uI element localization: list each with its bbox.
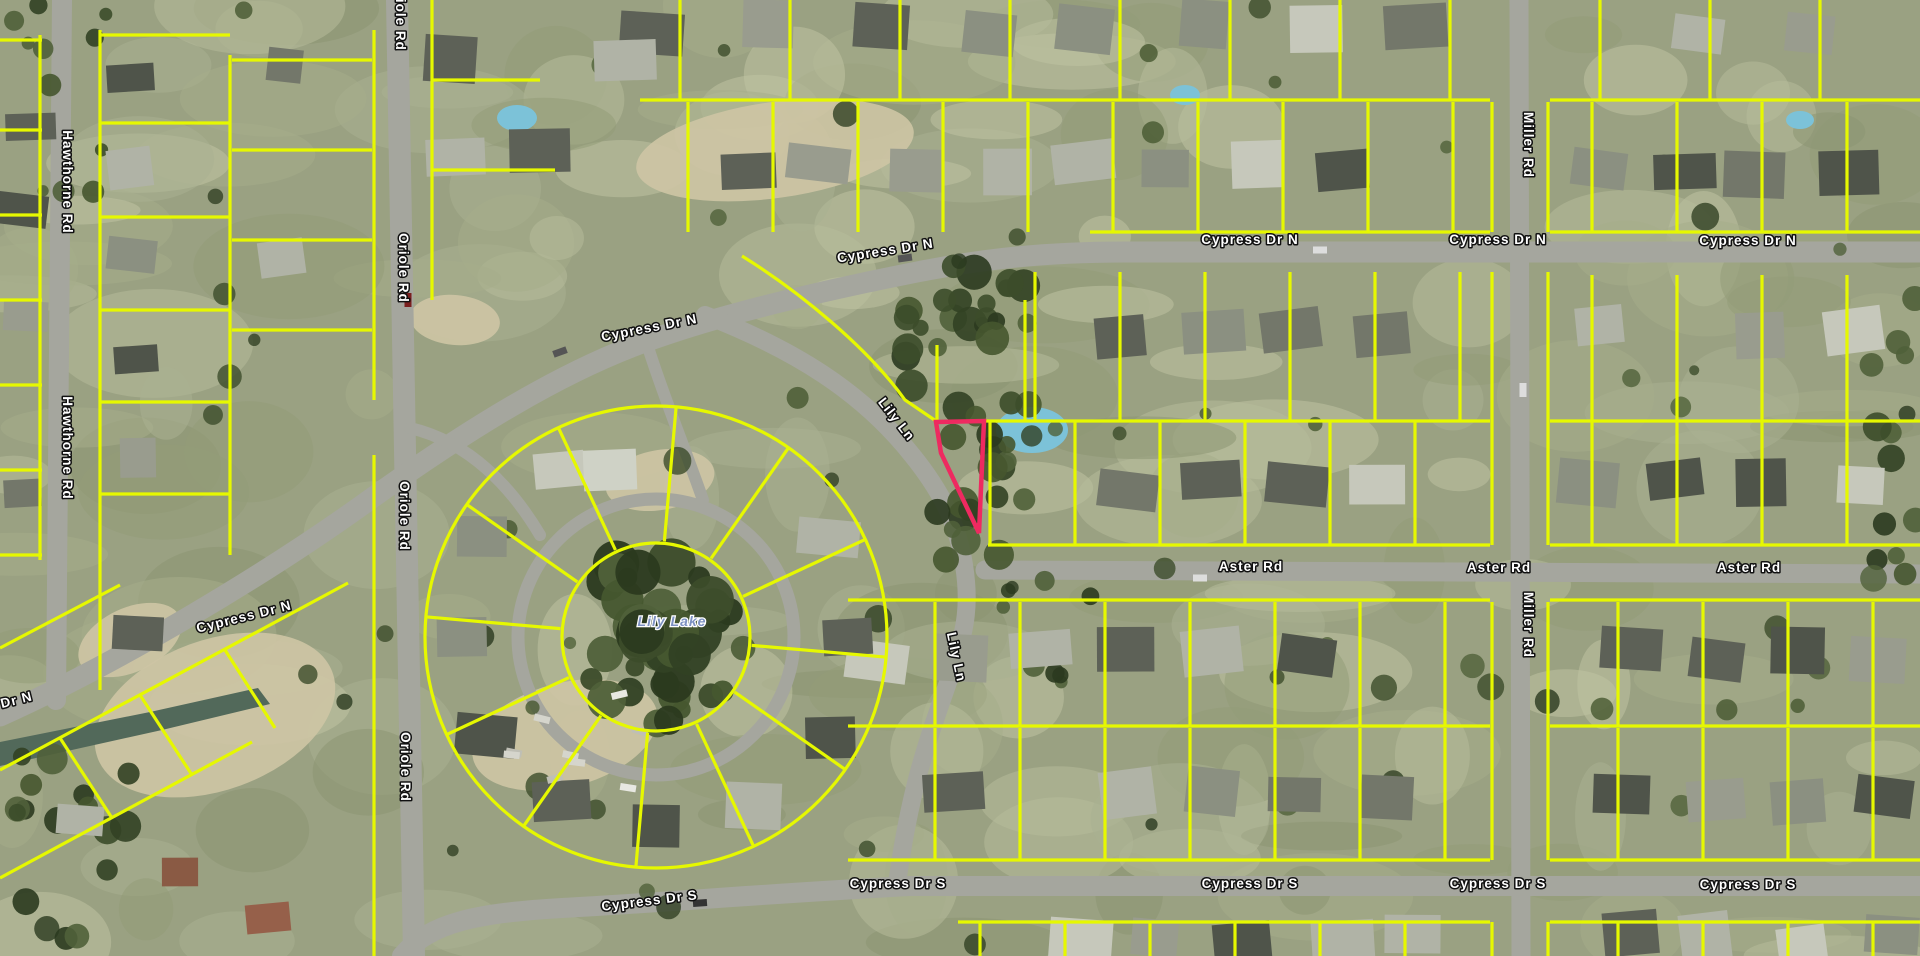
building bbox=[3, 301, 49, 332]
building bbox=[1836, 465, 1884, 505]
tree-canopy bbox=[9, 804, 26, 821]
tree-canopy bbox=[118, 763, 140, 785]
building bbox=[1735, 312, 1785, 360]
tree-canopy bbox=[712, 680, 734, 702]
tree-canopy bbox=[1670, 397, 1691, 418]
building bbox=[1849, 636, 1907, 684]
terrain-patch bbox=[1428, 458, 1491, 492]
building bbox=[1599, 626, 1663, 672]
tree-canopy bbox=[1269, 76, 1282, 89]
swimming-pool bbox=[497, 105, 537, 131]
building bbox=[257, 237, 307, 278]
tree-canopy bbox=[99, 8, 112, 21]
building bbox=[1096, 468, 1160, 512]
building bbox=[1784, 12, 1836, 55]
tree-canopy bbox=[710, 209, 727, 226]
road-surface bbox=[1519, 0, 1521, 956]
building bbox=[1854, 774, 1915, 819]
street-label: Miller Rd bbox=[1521, 592, 1536, 658]
street-label: Cypress Dr N bbox=[1449, 232, 1547, 247]
building bbox=[1179, 0, 1230, 49]
building bbox=[889, 149, 943, 193]
vehicle bbox=[1520, 383, 1527, 397]
tree-canopy bbox=[1021, 425, 1042, 446]
building bbox=[1822, 305, 1886, 357]
tree-canopy bbox=[4, 11, 24, 31]
tree-canopy bbox=[1860, 353, 1884, 377]
tree-canopy bbox=[975, 321, 1009, 355]
tree-canopy bbox=[1689, 365, 1699, 375]
tree-canopy bbox=[564, 637, 576, 649]
building bbox=[56, 804, 105, 837]
tree-canopy bbox=[65, 924, 90, 949]
street-label: Miller Rd bbox=[1521, 112, 1536, 178]
building bbox=[0, 191, 49, 229]
building bbox=[106, 63, 155, 93]
building bbox=[796, 517, 861, 559]
building bbox=[1677, 910, 1732, 956]
building bbox=[983, 149, 1032, 196]
vehicle bbox=[1313, 247, 1327, 254]
tree-canopy bbox=[718, 44, 731, 57]
building bbox=[1184, 765, 1240, 817]
tree-canopy bbox=[1082, 587, 1100, 605]
map-viewport[interactable]: Hawthorne RdHawthorne RdOriole RdOriole … bbox=[0, 0, 1920, 956]
terrain-patch bbox=[530, 216, 584, 260]
building bbox=[822, 618, 873, 657]
building bbox=[1723, 150, 1786, 199]
tree-canopy bbox=[940, 424, 966, 450]
tree-canopy bbox=[1791, 699, 1805, 713]
building bbox=[112, 615, 164, 652]
tree-canopy bbox=[663, 447, 691, 475]
tree-canopy bbox=[650, 670, 679, 699]
building bbox=[1601, 909, 1659, 956]
tree-canopy bbox=[924, 499, 950, 525]
tree-canopy bbox=[1591, 698, 1614, 721]
building bbox=[1008, 629, 1072, 669]
building bbox=[593, 39, 656, 81]
tree-canopy bbox=[213, 283, 235, 305]
tree-canopy bbox=[96, 859, 117, 880]
building bbox=[1050, 138, 1116, 185]
building bbox=[266, 47, 304, 84]
swimming-pool bbox=[1786, 111, 1814, 129]
building bbox=[1353, 311, 1411, 358]
tree-canopy bbox=[1888, 547, 1905, 564]
tree-canopy bbox=[731, 636, 756, 661]
tree-canopy bbox=[447, 845, 459, 857]
tree-canopy bbox=[859, 841, 876, 858]
lake-label: Lily Lake bbox=[638, 613, 707, 629]
building bbox=[1231, 140, 1284, 189]
road-surface bbox=[56, 0, 62, 700]
building bbox=[785, 142, 852, 184]
tree-canopy bbox=[377, 625, 394, 642]
tree-canopy bbox=[1113, 426, 1127, 440]
building bbox=[1277, 633, 1337, 678]
building bbox=[5, 113, 56, 141]
terrain-patch bbox=[78, 444, 249, 539]
street-label: Aster Rd bbox=[1717, 560, 1781, 575]
street-label: Oriole Rd bbox=[393, 0, 408, 51]
terrain-patch bbox=[930, 100, 1062, 140]
terrain-patch bbox=[119, 878, 173, 940]
tree-canopy bbox=[1013, 488, 1035, 510]
building bbox=[805, 716, 856, 759]
tree-canopy bbox=[1145, 818, 1157, 830]
terrain-patch bbox=[1413, 258, 1526, 347]
tree-canopy bbox=[1896, 346, 1914, 364]
building bbox=[1141, 150, 1188, 188]
building bbox=[509, 128, 571, 173]
building bbox=[113, 344, 159, 374]
street-label: Oriole Rd bbox=[396, 233, 411, 303]
tree-canopy bbox=[248, 334, 260, 346]
street-label: Aster Rd bbox=[1219, 559, 1283, 574]
tree-canopy bbox=[933, 289, 956, 312]
building bbox=[1646, 457, 1705, 500]
street-label: Oriole Rd bbox=[398, 732, 413, 802]
tree-canopy bbox=[1622, 369, 1640, 387]
street-label: Oriole Rd bbox=[397, 481, 412, 551]
building bbox=[1290, 5, 1343, 53]
vehicle bbox=[1193, 575, 1207, 582]
street-label: Hawthorne Rd bbox=[60, 396, 75, 500]
building bbox=[922, 771, 985, 813]
building bbox=[742, 0, 794, 48]
building bbox=[1180, 460, 1242, 500]
tree-canopy bbox=[1716, 699, 1737, 720]
tree-canopy bbox=[1371, 675, 1397, 701]
tree-canopy bbox=[1860, 565, 1887, 592]
building bbox=[1686, 778, 1746, 823]
tree-canopy bbox=[615, 550, 660, 595]
street-label: Cypress Dr N bbox=[1201, 232, 1299, 247]
street-label: Aster Rd bbox=[1467, 560, 1531, 575]
tree-canopy bbox=[1005, 581, 1018, 594]
tree-canopy bbox=[203, 405, 223, 425]
street-label: Cypress Dr S bbox=[1202, 876, 1299, 891]
building bbox=[1671, 13, 1726, 54]
building bbox=[3, 478, 42, 508]
building bbox=[1383, 2, 1449, 50]
tree-canopy bbox=[964, 934, 986, 956]
building bbox=[1054, 3, 1115, 55]
tree-canopy bbox=[1154, 558, 1176, 580]
tree-canopy bbox=[951, 253, 967, 269]
building bbox=[245, 902, 292, 935]
terrain-patch bbox=[1038, 286, 1174, 323]
terrain-patch bbox=[196, 788, 310, 872]
building bbox=[1818, 150, 1879, 196]
building bbox=[1181, 309, 1246, 355]
tree-canopy bbox=[1863, 412, 1892, 441]
tree-canopy bbox=[833, 101, 859, 127]
swimming-pool bbox=[1170, 85, 1200, 105]
tree-canopy bbox=[1440, 141, 1453, 154]
tree-canopy bbox=[1269, 669, 1284, 684]
tree-canopy bbox=[996, 269, 1024, 297]
tree-canopy bbox=[1045, 663, 1064, 682]
tree-canopy bbox=[1140, 44, 1158, 62]
tree-canopy bbox=[895, 369, 927, 401]
street-label: Cypress Dr S bbox=[850, 876, 947, 891]
tree-canopy bbox=[298, 665, 317, 684]
building bbox=[1360, 774, 1414, 820]
tree-canopy bbox=[12, 888, 39, 915]
tree-canopy bbox=[1142, 121, 1164, 143]
building bbox=[1770, 778, 1827, 825]
tree-canopy bbox=[1691, 203, 1719, 231]
building bbox=[162, 858, 198, 887]
building bbox=[457, 516, 507, 557]
tree-canopy bbox=[1048, 421, 1063, 436]
street-label: Cypress Dr S bbox=[1700, 877, 1797, 892]
street-label: Hawthorne Rd bbox=[60, 130, 75, 234]
tree-canopy bbox=[668, 633, 710, 675]
tree-canopy bbox=[587, 680, 626, 719]
terrain-patch bbox=[686, 428, 861, 469]
building bbox=[1556, 457, 1620, 508]
tree-canopy bbox=[1460, 654, 1484, 678]
building bbox=[1315, 149, 1370, 192]
tree-canopy bbox=[892, 333, 923, 364]
building bbox=[1212, 920, 1273, 956]
building bbox=[1653, 153, 1717, 190]
tree-canopy bbox=[525, 700, 539, 714]
tree-canopy bbox=[1873, 512, 1896, 535]
street-label: Cypress Dr S bbox=[1450, 876, 1547, 891]
building bbox=[106, 236, 158, 274]
tree-canopy bbox=[20, 774, 42, 796]
parcel-map-canvas[interactable]: Hawthorne RdHawthorne RdOriole RdOriole … bbox=[0, 0, 1920, 956]
tree-canopy bbox=[34, 916, 59, 941]
terrain-patch bbox=[1545, 16, 1622, 53]
building bbox=[1349, 465, 1405, 505]
building bbox=[583, 449, 638, 492]
building bbox=[105, 146, 154, 191]
tree-canopy bbox=[336, 694, 352, 710]
tree-canopy bbox=[1009, 228, 1026, 245]
building bbox=[1770, 627, 1825, 675]
tree-canopy bbox=[1035, 571, 1055, 591]
building bbox=[721, 152, 777, 190]
tree-canopy bbox=[787, 387, 809, 409]
building bbox=[1570, 147, 1629, 191]
building bbox=[1574, 304, 1625, 346]
terrain-patch bbox=[346, 369, 398, 419]
tree-canopy bbox=[1894, 563, 1917, 586]
tree-canopy bbox=[1308, 417, 1322, 431]
building bbox=[1688, 637, 1746, 683]
tree-canopy bbox=[39, 74, 62, 97]
tree-canopy bbox=[235, 2, 253, 20]
street-label: Cypress Dr N bbox=[1699, 233, 1797, 248]
tree-canopy bbox=[999, 391, 1022, 414]
tree-canopy bbox=[1833, 243, 1846, 256]
tree-canopy bbox=[894, 305, 920, 331]
building bbox=[120, 438, 156, 478]
building bbox=[1593, 774, 1651, 815]
tree-canopy bbox=[997, 600, 1010, 613]
terrain-patch bbox=[1846, 741, 1920, 776]
tree-canopy bbox=[208, 189, 223, 204]
building bbox=[1264, 461, 1330, 507]
